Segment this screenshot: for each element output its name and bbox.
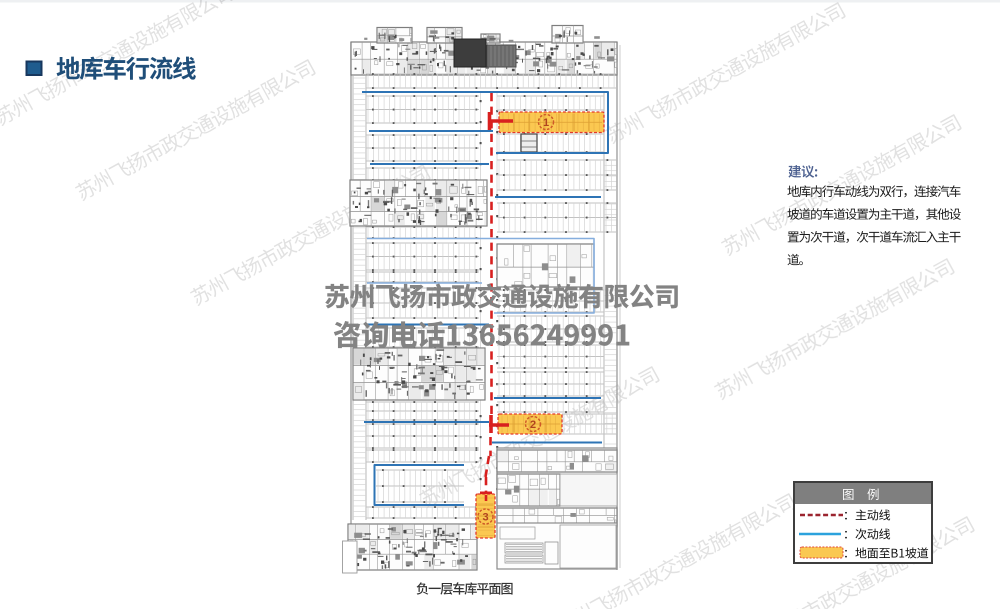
svg-text:2: 2 xyxy=(530,419,536,431)
svg-text:1: 1 xyxy=(543,117,549,129)
svg-text:3: 3 xyxy=(482,512,488,524)
